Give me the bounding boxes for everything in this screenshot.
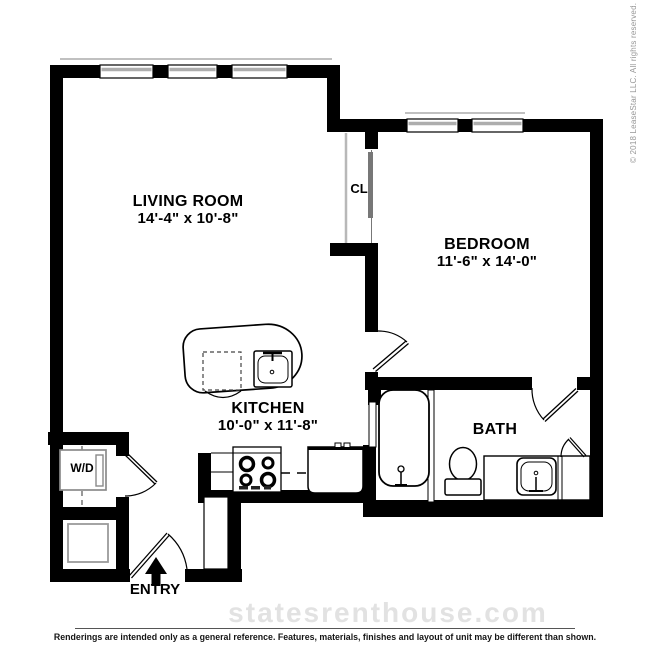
footer-divider bbox=[75, 628, 575, 629]
room-name: LIVING ROOM bbox=[133, 193, 244, 211]
room-name: BEDROOM bbox=[437, 236, 537, 254]
stove bbox=[233, 447, 281, 492]
linen-door bbox=[561, 438, 586, 458]
toilet bbox=[445, 448, 481, 496]
bedroom-label: BEDROOM 11'-6" x 14'-0" bbox=[437, 236, 537, 271]
wd-closet-door bbox=[124, 452, 157, 496]
walls bbox=[48, 65, 603, 582]
room-name: BATH bbox=[473, 421, 517, 439]
living-room-window bbox=[100, 65, 153, 78]
floor-plan-drawing bbox=[0, 0, 650, 650]
living-room-label: LIVING ROOM 14'-4" x 10'-8" bbox=[133, 193, 244, 228]
closet-label: CL bbox=[350, 182, 367, 197]
watermark: statesrenthouse.com bbox=[228, 597, 548, 629]
kitchen-island bbox=[182, 322, 304, 398]
room-name: KITCHEN bbox=[218, 400, 318, 418]
bathtub bbox=[379, 390, 429, 486]
closet-shelf bbox=[68, 524, 108, 562]
washer-dryer-label: W/D bbox=[70, 462, 93, 475]
washer-dryer-unit bbox=[60, 446, 106, 505]
room-name: ENTRY bbox=[130, 582, 180, 599]
copyright-text: © 2018 LeaseStar LLC. All rights reserve… bbox=[629, 3, 638, 163]
living-room-window bbox=[232, 65, 287, 78]
refrigerator bbox=[308, 443, 363, 493]
disclaimer-text: Renderings are intended only as a genera… bbox=[54, 632, 596, 642]
room-name: CL bbox=[350, 182, 367, 197]
floor-plan-page: LIVING ROOM 14'-4" x 10'-8" BEDROOM 11'-… bbox=[0, 0, 650, 650]
entry-label: ENTRY bbox=[130, 582, 180, 599]
living-room-window bbox=[168, 65, 217, 78]
room-dimensions: 14'-4" x 10'-8" bbox=[133, 211, 244, 228]
bedroom-window bbox=[407, 119, 458, 132]
room-name: W/D bbox=[70, 462, 93, 475]
vanity-counter bbox=[484, 438, 590, 501]
room-dimensions: 10'-0" x 11'-8" bbox=[218, 418, 318, 435]
bedroom-window bbox=[472, 119, 523, 132]
kitchen-label: KITCHEN 10'-0" x 11'-8" bbox=[218, 400, 318, 435]
bath-label: BATH bbox=[473, 421, 517, 439]
island-sink bbox=[254, 351, 292, 387]
bathroom-sink bbox=[517, 458, 556, 495]
room-dimensions: 11'-6" x 14'-0" bbox=[437, 254, 537, 271]
bath-door bbox=[532, 388, 578, 422]
bedroom-door bbox=[373, 331, 409, 372]
